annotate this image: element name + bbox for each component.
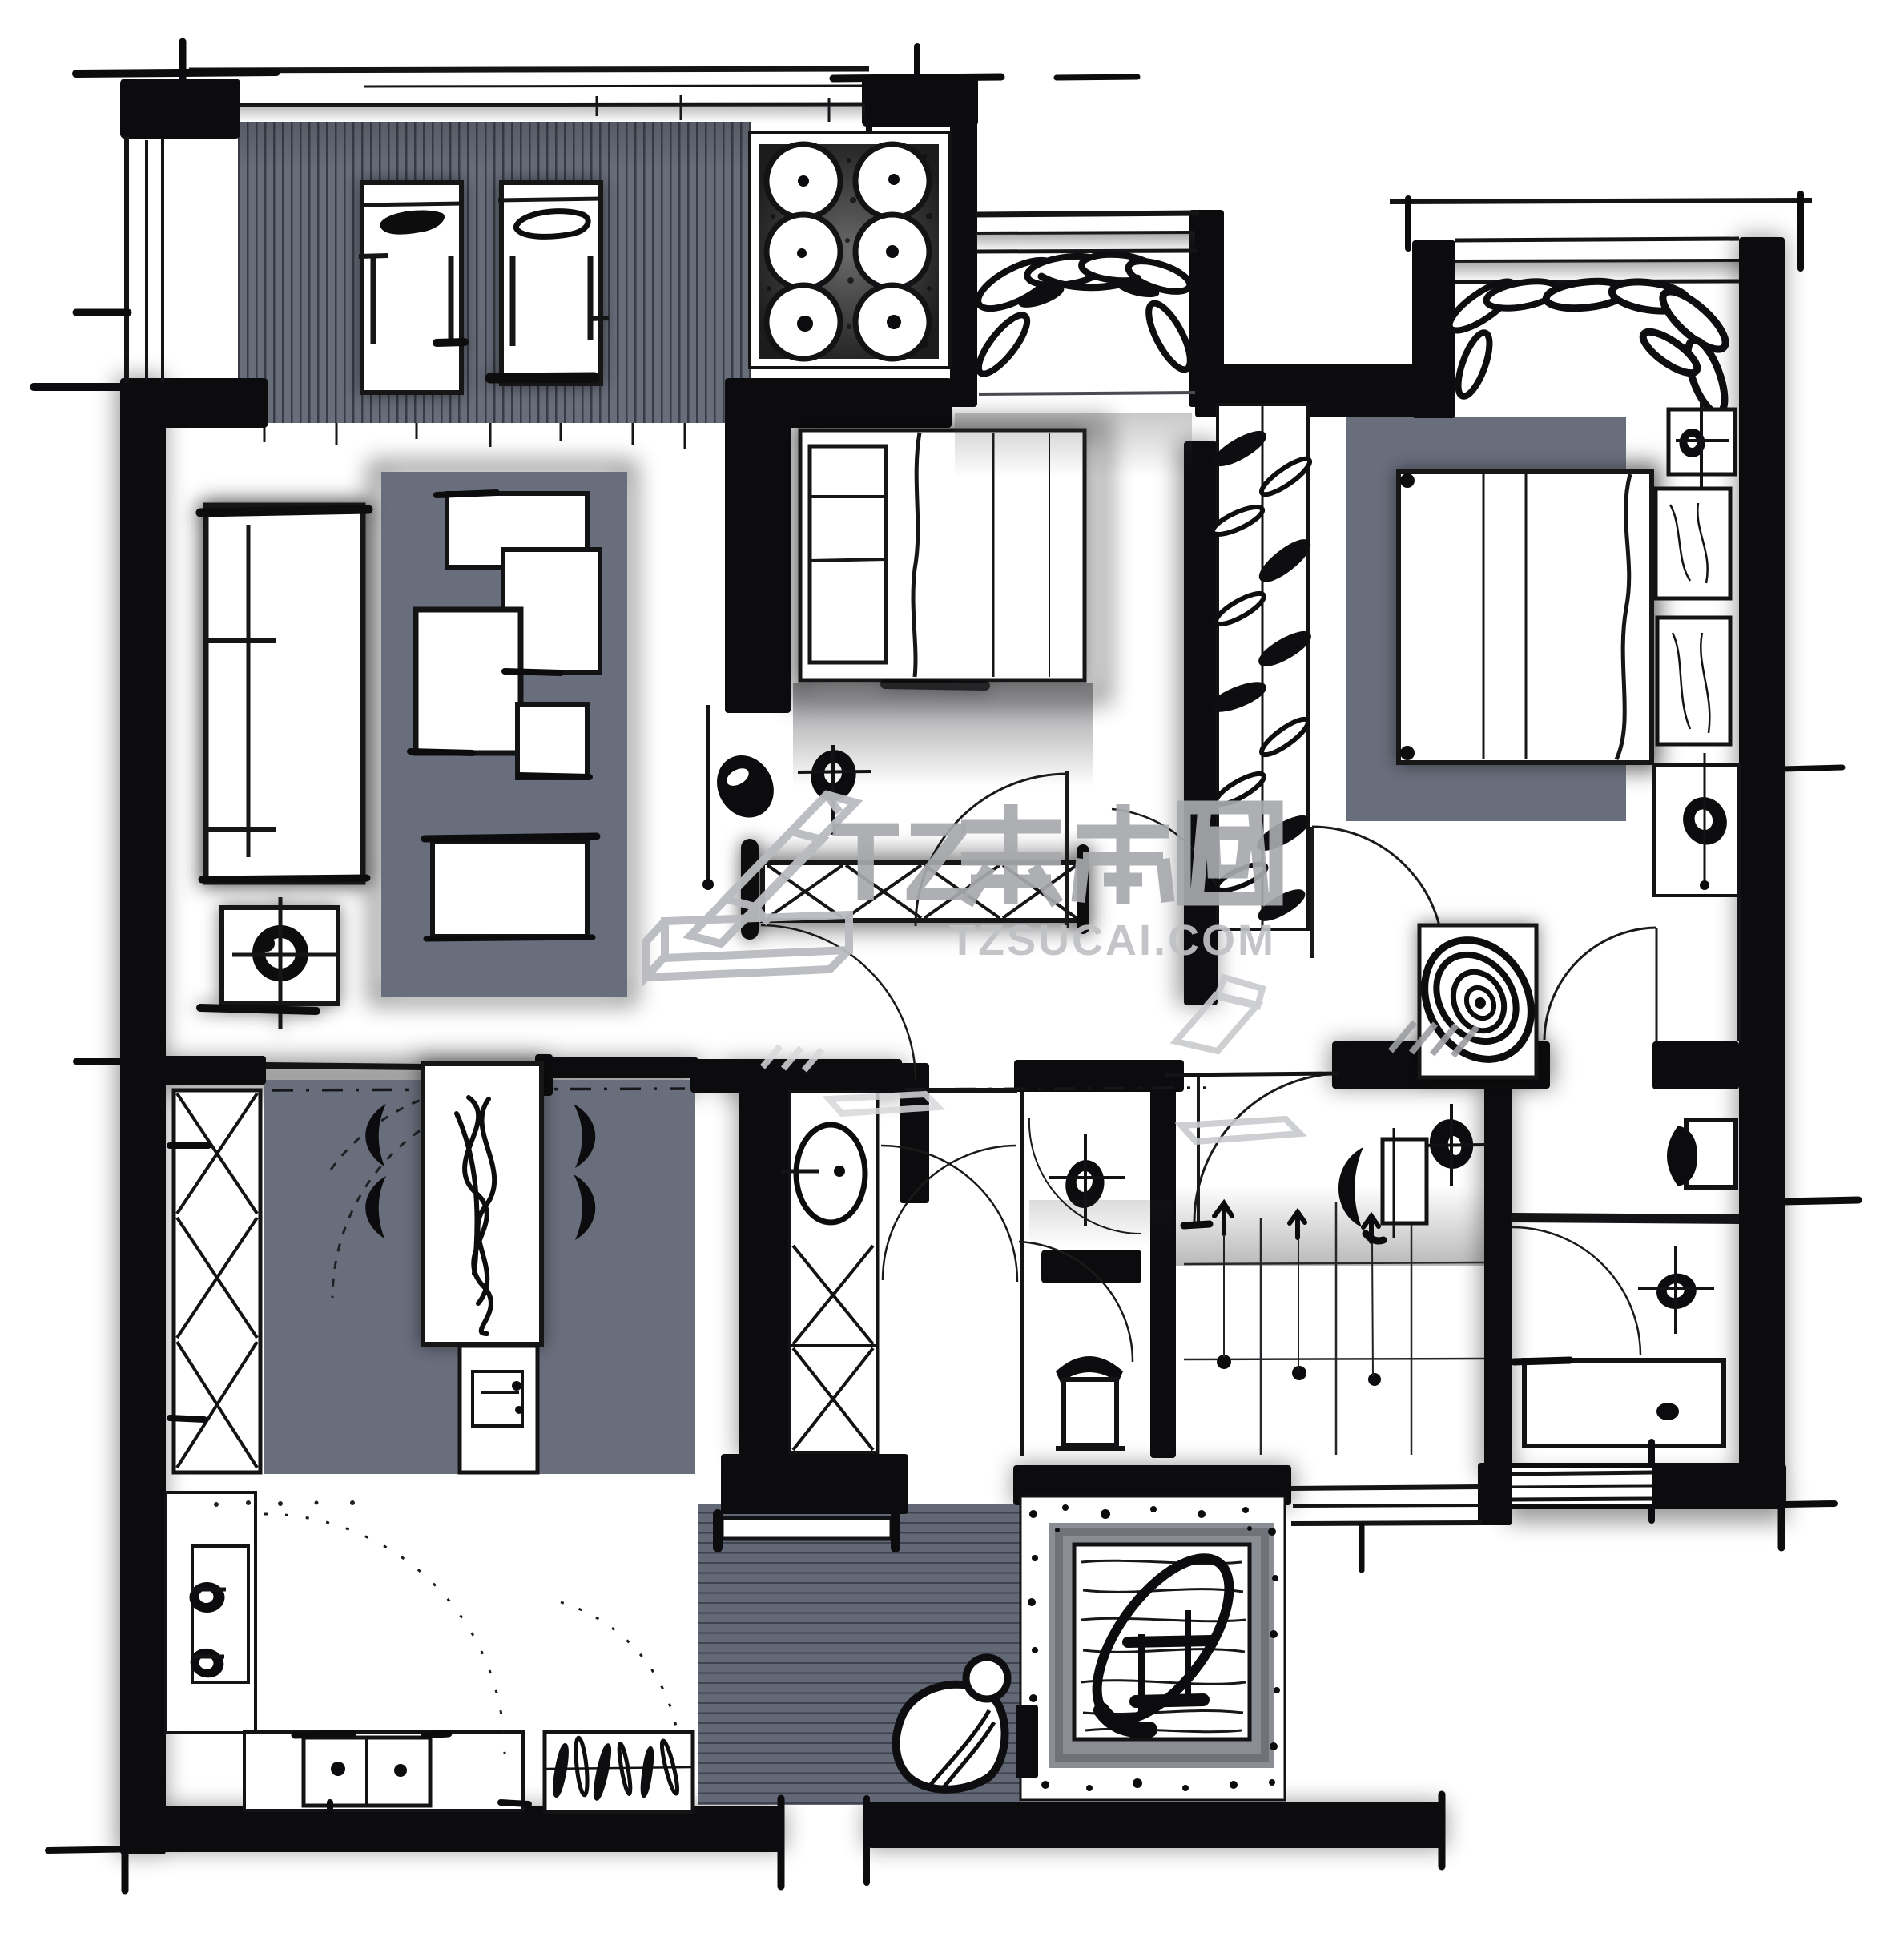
svg-text:TZSUCAI.COM: TZSUCAI.COM — [949, 916, 1276, 964]
svg-text:TZ: TZ — [831, 799, 975, 924]
